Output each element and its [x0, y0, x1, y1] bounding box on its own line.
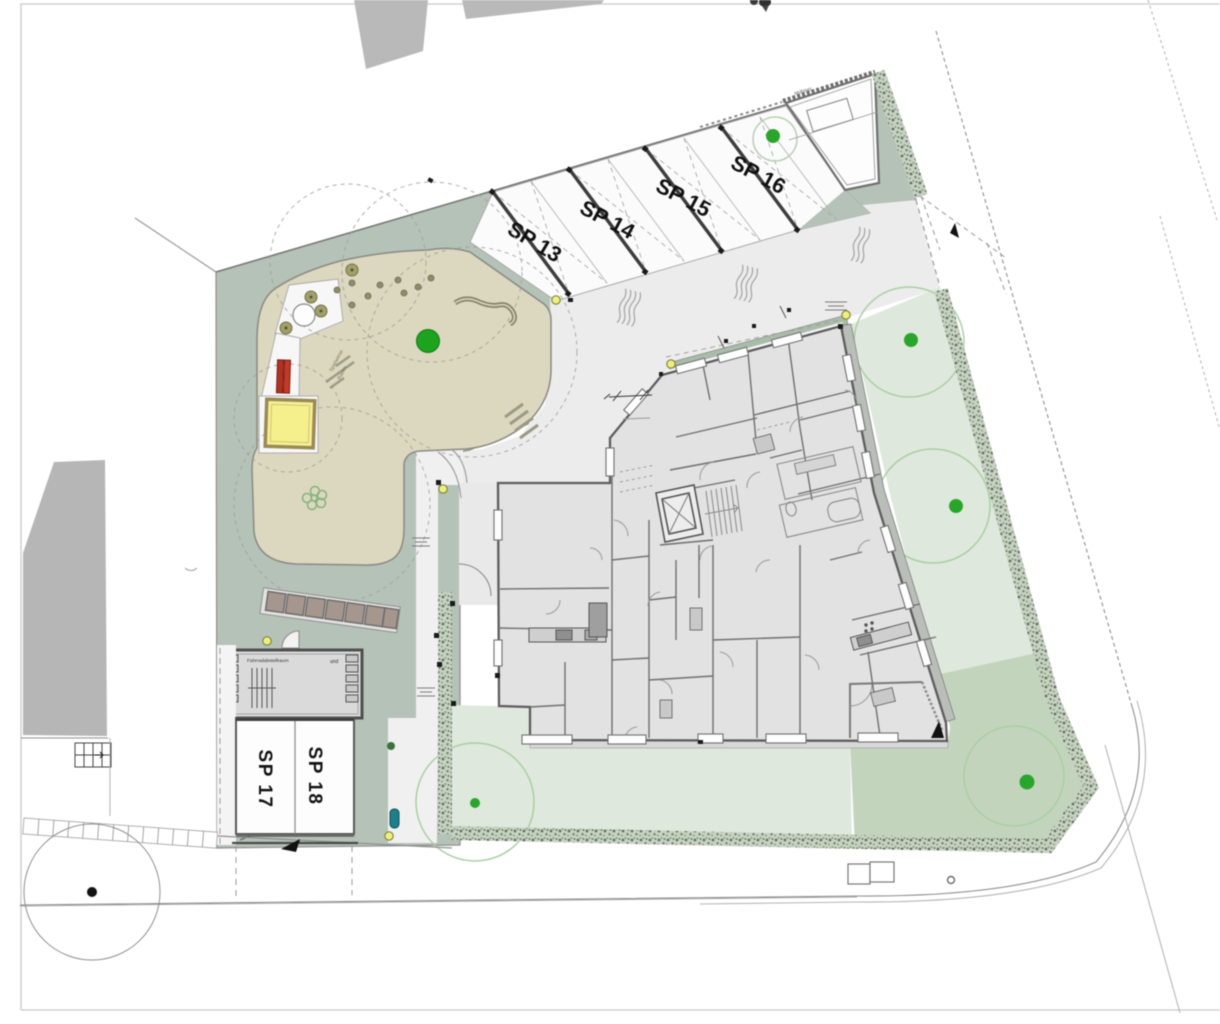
svg-text:SP 18: SP 18: [304, 747, 325, 806]
svg-text:und: und: [330, 659, 339, 665]
svg-text:SP 17: SP 17: [254, 750, 275, 809]
svg-text:Fahrradabstellraum: Fahrradabstellraum: [247, 658, 289, 664]
